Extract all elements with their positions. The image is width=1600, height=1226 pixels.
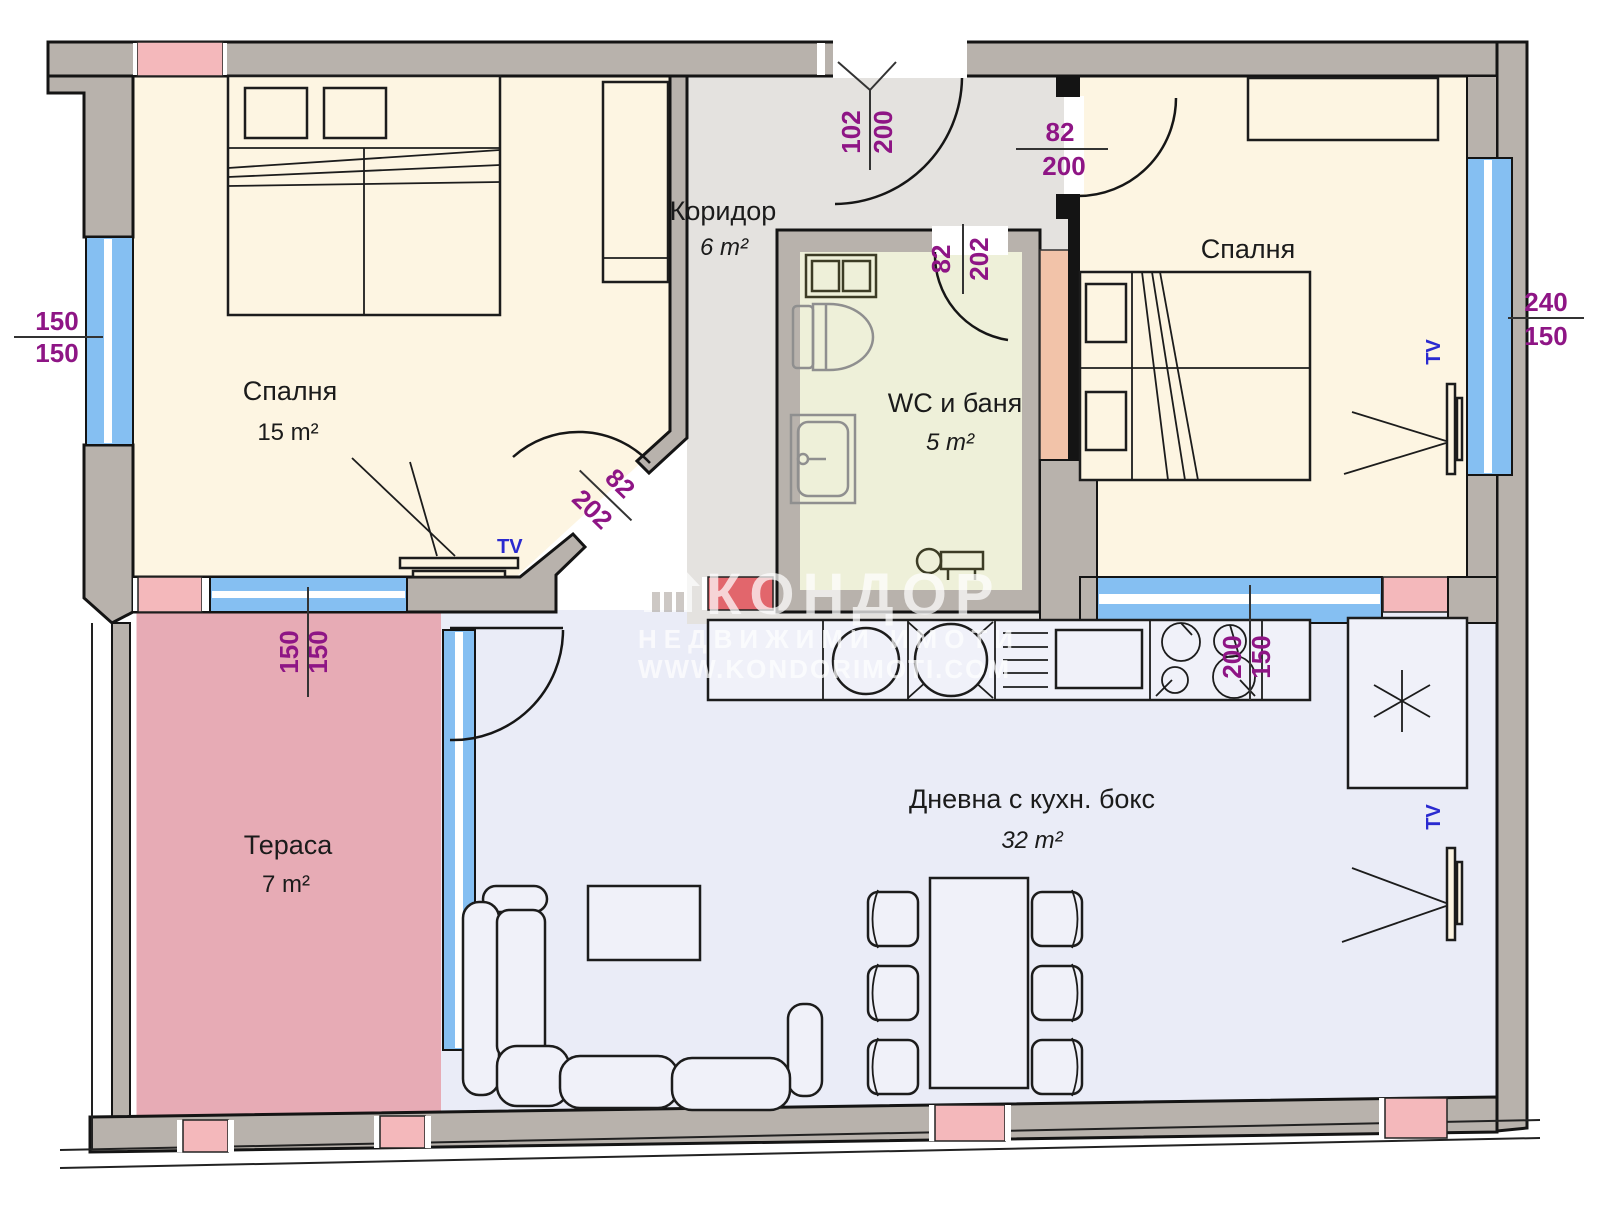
svg-text:240: 240 <box>1524 287 1567 317</box>
terrace-label: Тераса <box>244 830 334 860</box>
dining-set <box>868 878 1082 1096</box>
dining-chair <box>1032 964 1082 1022</box>
bathroom-area: 5 m² <box>926 429 975 456</box>
pink-block-top <box>137 42 223 76</box>
bathroom-walls <box>777 226 1040 612</box>
svg-text:150: 150 <box>35 306 78 336</box>
watermark-line2: НЕДВИЖИМИ ИМОТИ <box>638 624 1020 654</box>
coffee-table <box>588 886 700 960</box>
bathroom-label: WC и баня <box>888 388 1022 418</box>
right-window <box>1467 158 1512 475</box>
dining-chair <box>868 964 918 1022</box>
dining-table <box>930 878 1028 1088</box>
svg-text:200: 200 <box>1217 635 1247 678</box>
dining-chair <box>868 890 918 948</box>
bed-right <box>1080 272 1310 480</box>
svg-text:150: 150 <box>303 630 333 673</box>
corridor-label: Коридор <box>670 196 777 226</box>
svg-text:150: 150 <box>1524 321 1567 351</box>
terrace-area: 7 m² <box>262 871 310 898</box>
watermark-line3: WWW.KONDORIMOTI.COM <box>638 654 1011 684</box>
floor-plan: TV TV <box>0 0 1600 1221</box>
pink-block-bedroom-left <box>138 577 202 612</box>
svg-text:150: 150 <box>1246 635 1276 678</box>
terrace-floor <box>135 612 441 1117</box>
fridge-icon <box>1348 618 1467 788</box>
svg-text:82: 82 <box>1046 117 1075 147</box>
tv-label-living: TV <box>1423 804 1445 830</box>
watermark-brand: КОНДОР <box>706 562 1002 627</box>
wardrobe-right <box>1248 78 1438 140</box>
svg-text:202: 202 <box>964 237 994 280</box>
svg-text:200: 200 <box>1042 151 1085 181</box>
svg-text:200: 200 <box>868 110 898 153</box>
tv-label-left: TV <box>497 536 523 558</box>
dining-chair <box>1032 1038 1082 1096</box>
bed-left <box>228 76 500 315</box>
wardrobe-left <box>603 82 668 282</box>
dining-chair <box>1032 890 1082 948</box>
svg-text:150: 150 <box>35 338 78 368</box>
svg-text:102: 102 <box>836 110 866 153</box>
left-window <box>86 237 133 445</box>
pink-block-bedroom-right <box>1383 577 1448 612</box>
floor-plan-page: TV TV <box>0 0 1600 1221</box>
svg-text:150: 150 <box>274 630 304 673</box>
bedroom-left-area: 15 m² <box>257 419 318 446</box>
living-area: 32 m² <box>1001 827 1063 854</box>
bedroom-left-label: Спалня <box>243 376 337 406</box>
corridor-area: 6 m² <box>700 234 749 261</box>
tv-label-right: TV <box>1423 339 1445 365</box>
dining-chair <box>868 1038 918 1096</box>
svg-text:82: 82 <box>926 245 956 274</box>
bedroom-right-label: Спалня <box>1201 234 1295 264</box>
living-label: Дневна с кухн. бокс <box>909 784 1155 814</box>
shaft <box>1040 250 1072 462</box>
